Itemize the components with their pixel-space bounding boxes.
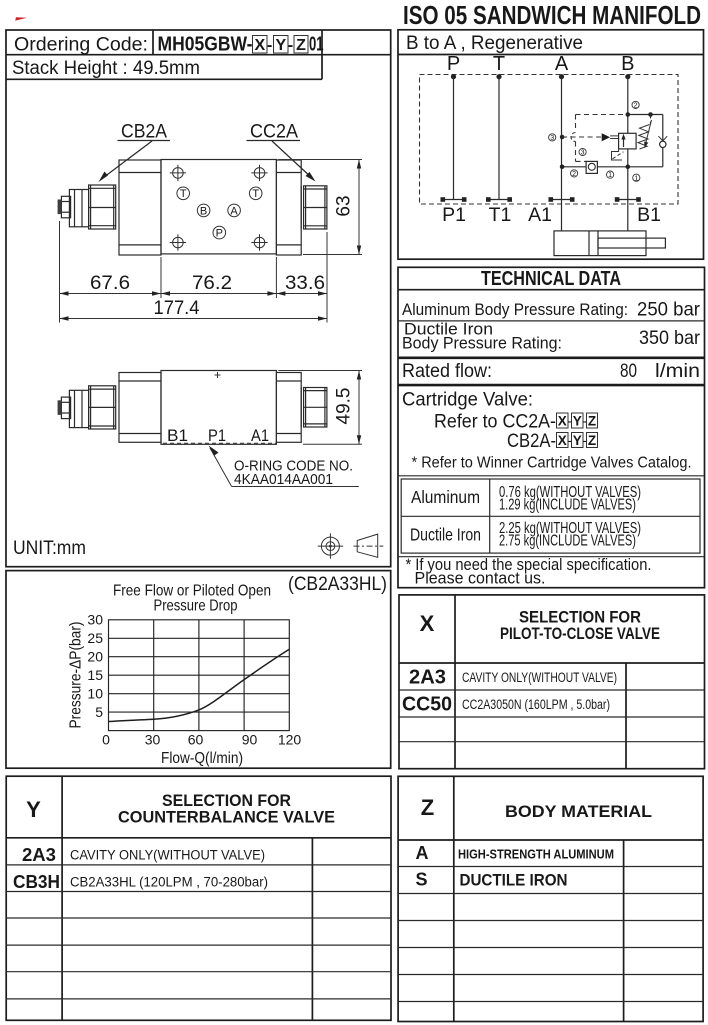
svg-text:l/min: l/min xyxy=(655,360,700,382)
svg-text:T: T xyxy=(493,53,505,75)
svg-text:33.6: 33.6 xyxy=(285,273,325,294)
svg-text:3: 3 xyxy=(581,150,585,157)
svg-text:P: P xyxy=(216,228,223,240)
svg-text:Z: Z xyxy=(588,414,596,429)
svg-text:90: 90 xyxy=(242,732,258,748)
svg-text:80: 80 xyxy=(620,360,637,382)
svg-text:BODY MATERIAL: BODY MATERIAL xyxy=(505,802,652,821)
svg-text:CAVITY ONLY(WITHOUT VALVE): CAVITY ONLY(WITHOUT VALVE) xyxy=(462,670,617,685)
svg-text:Y: Y xyxy=(573,433,582,448)
svg-text:T: T xyxy=(180,188,187,200)
svg-text:Ordering Code:: Ordering Code: xyxy=(14,35,148,56)
svg-text:120: 120 xyxy=(278,732,302,748)
svg-text:A1: A1 xyxy=(528,204,552,226)
svg-text:250 bar: 250 bar xyxy=(637,299,700,321)
svg-text:350 bar: 350 bar xyxy=(639,327,700,349)
svg-text:Ductile Iron: Ductile Iron xyxy=(410,525,481,545)
svg-text:Cartridge Valve:: Cartridge Valve: xyxy=(402,389,533,411)
svg-text:4KAA014AA001: 4KAA014AA001 xyxy=(234,471,333,488)
svg-text:CB3H: CB3H xyxy=(13,872,60,892)
svg-text:3: 3 xyxy=(550,135,554,142)
svg-text:Y: Y xyxy=(573,414,582,429)
svg-text:HIGH-STRENGTH ALUMINUM: HIGH-STRENGTH ALUMINUM xyxy=(458,847,614,862)
svg-text:15: 15 xyxy=(87,667,103,683)
svg-text:Please contact us.: Please contact us. xyxy=(415,570,546,588)
svg-text:COUNTERBALANCE VALVE: COUNTERBALANCE VALVE xyxy=(118,808,335,827)
svg-text:Z: Z xyxy=(296,37,306,54)
svg-text:P: P xyxy=(447,53,460,75)
svg-text:X: X xyxy=(254,37,265,54)
svg-text:01: 01 xyxy=(309,33,324,56)
svg-text:CB2A33HL (120LPM , 70-280bar): CB2A33HL (120LPM , 70-280bar) xyxy=(70,875,268,890)
svg-text:Stack Height : 49.5mm: Stack Height : 49.5mm xyxy=(12,58,200,79)
svg-text:B to A , Regenerative: B to A , Regenerative xyxy=(406,33,583,54)
svg-text:-: - xyxy=(288,37,293,54)
svg-text:A: A xyxy=(555,53,569,75)
svg-text:Y: Y xyxy=(26,797,41,822)
svg-text:TECHNICAL DATA: TECHNICAL DATA xyxy=(481,268,621,290)
svg-text:CAVITY ONLY(WITHOUT VALVE): CAVITY ONLY(WITHOUT VALVE) xyxy=(70,848,265,863)
svg-text:CC50: CC50 xyxy=(402,694,452,716)
svg-text:49.5: 49.5 xyxy=(334,388,355,425)
svg-text:B1: B1 xyxy=(637,204,661,226)
svg-text:Rated flow:: Rated flow: xyxy=(402,360,492,382)
svg-text:177.4: 177.4 xyxy=(154,298,200,319)
svg-text:Aluminum: Aluminum xyxy=(411,487,480,507)
svg-text:30: 30 xyxy=(145,732,161,748)
svg-text:2A3: 2A3 xyxy=(409,667,446,689)
svg-text:1: 1 xyxy=(634,175,638,182)
svg-text:Body Pressure Rating:: Body Pressure Rating: xyxy=(402,335,562,353)
svg-text:X: X xyxy=(420,611,435,636)
svg-text:MH05GBW-: MH05GBW- xyxy=(158,33,253,56)
svg-text:10: 10 xyxy=(87,685,103,701)
svg-text:Flow-Q(l/min): Flow-Q(l/min) xyxy=(161,750,243,767)
svg-text:1: 1 xyxy=(608,172,612,179)
svg-text:2A3: 2A3 xyxy=(22,845,56,865)
svg-text:SELECTION FOR: SELECTION FOR xyxy=(519,609,641,627)
svg-text:T1: T1 xyxy=(489,204,512,226)
svg-text:2.75 kg(INCLUDE VALVES): 2.75 kg(INCLUDE VALVES) xyxy=(499,533,636,550)
svg-text:PILOT-TO-CLOSE VALVE: PILOT-TO-CLOSE VALVE xyxy=(500,625,660,643)
svg-text:-: - xyxy=(267,37,272,54)
svg-text:* Refer to Winner Cartridge Va: * Refer to Winner Cartridge Valves Catal… xyxy=(412,455,692,472)
svg-text:P1: P1 xyxy=(208,426,226,445)
svg-text:Aluminum Body Pressure Rating:: Aluminum Body Pressure Rating: xyxy=(402,301,628,319)
svg-text:A: A xyxy=(416,843,429,863)
svg-text:Z: Z xyxy=(421,795,434,820)
svg-text:CC2A3050N (160LPM , 5.0bar): CC2A3050N (160LPM , 5.0bar) xyxy=(462,697,610,712)
svg-text:2: 2 xyxy=(634,103,638,110)
svg-text:2: 2 xyxy=(572,171,576,178)
svg-text:67.6: 67.6 xyxy=(90,273,130,294)
svg-text:Pressure-ΔP(bar): Pressure-ΔP(bar) xyxy=(68,622,85,729)
svg-text:B: B xyxy=(621,53,634,75)
svg-text:B1: B1 xyxy=(167,426,188,445)
svg-text:30: 30 xyxy=(87,612,103,628)
svg-text:S: S xyxy=(415,870,427,890)
svg-text:5: 5 xyxy=(95,704,103,720)
svg-text:X: X xyxy=(558,433,567,448)
svg-text:Z: Z xyxy=(588,433,596,448)
svg-text:25: 25 xyxy=(87,630,103,646)
svg-text:P1: P1 xyxy=(442,204,466,226)
svg-text:ISO 05 SANDWICH MANIFOLD: ISO 05 SANDWICH MANIFOLD xyxy=(403,0,701,30)
svg-text:T: T xyxy=(252,188,259,200)
svg-text:UNIT:mm: UNIT:mm xyxy=(13,538,86,559)
svg-text:20: 20 xyxy=(87,648,103,664)
svg-text:A1: A1 xyxy=(251,426,269,445)
svg-text:DUCTILE IRON: DUCTILE IRON xyxy=(460,871,568,890)
svg-text:CB2A-: CB2A- xyxy=(507,430,556,452)
svg-text:76.2: 76.2 xyxy=(192,273,232,294)
svg-text:A: A xyxy=(230,205,238,217)
svg-text:(CB2A33HL): (CB2A33HL) xyxy=(288,574,387,595)
svg-text:B: B xyxy=(200,205,207,217)
svg-text:63: 63 xyxy=(334,195,355,216)
svg-text:X: X xyxy=(558,414,567,429)
svg-text:CB2A: CB2A xyxy=(121,122,167,143)
svg-text:CC2A: CC2A xyxy=(250,122,298,143)
svg-text:1.29 kg(INCLUDE VALVES): 1.29 kg(INCLUDE VALVES) xyxy=(499,497,636,514)
svg-text:60: 60 xyxy=(188,732,204,748)
svg-text:Pressure Drop: Pressure Drop xyxy=(154,598,238,615)
svg-text:Y: Y xyxy=(275,37,286,54)
svg-text:0: 0 xyxy=(102,732,110,748)
